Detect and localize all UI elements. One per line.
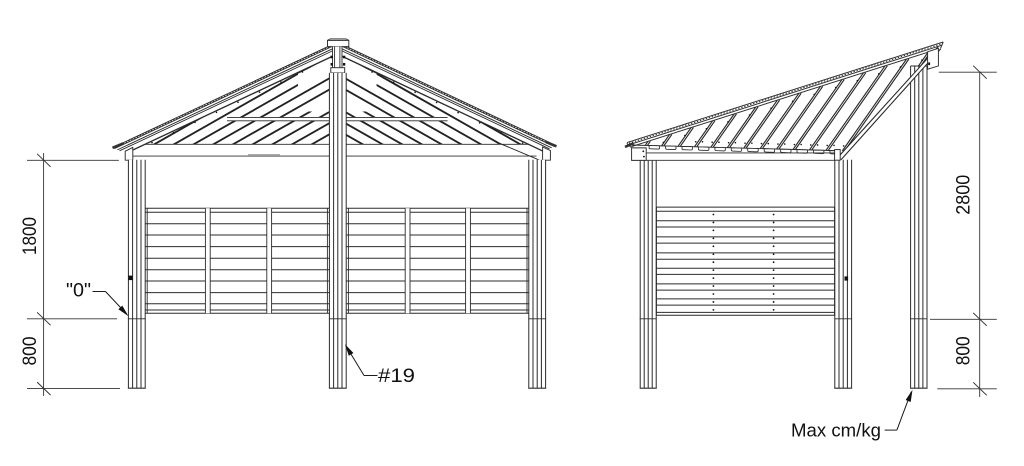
svg-text:Max cm/kg: Max cm/kg xyxy=(791,421,881,441)
svg-text:800: 800 xyxy=(20,337,41,366)
svg-text:"0": "0" xyxy=(66,280,91,301)
svg-text:1800: 1800 xyxy=(20,217,41,255)
svg-text:2800: 2800 xyxy=(954,175,975,215)
svg-text:#19: #19 xyxy=(378,366,415,387)
svg-text:800: 800 xyxy=(954,336,975,365)
